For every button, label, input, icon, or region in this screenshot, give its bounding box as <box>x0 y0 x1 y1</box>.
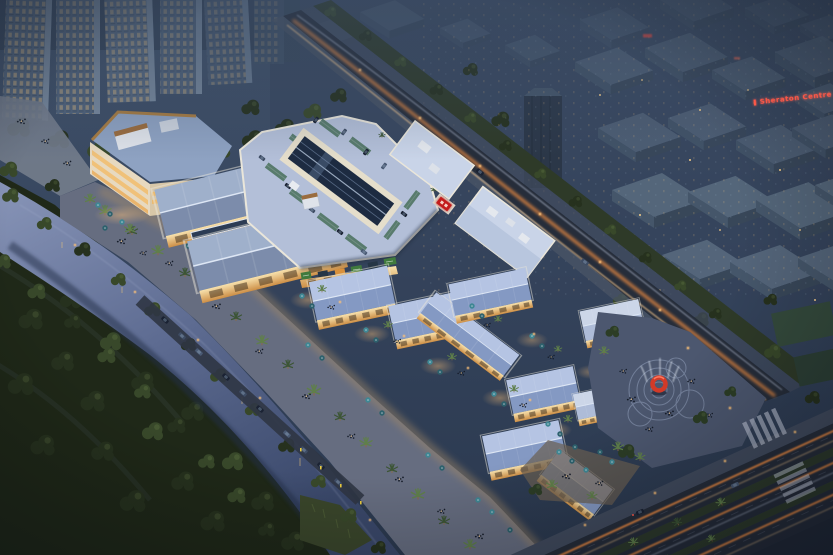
scene-canvas: Sheraton Centre <box>0 0 833 555</box>
vignette <box>0 0 833 555</box>
aerial-rendering: Sheraton Centre <box>0 0 833 555</box>
